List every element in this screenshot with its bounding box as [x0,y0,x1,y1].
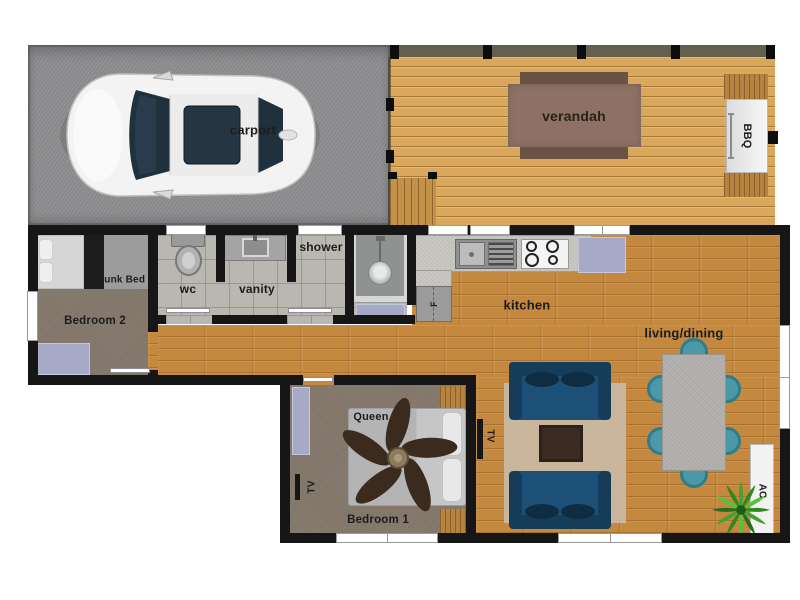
wall [466,375,476,543]
verandah-post [577,45,586,59]
window [298,225,342,235]
verandah-post [390,45,399,59]
sofa-arm [509,362,522,420]
door-opening [148,332,158,370]
queen-label: Queen [353,411,388,423]
sofa-cushion [561,504,595,519]
carport-label: carport [230,123,276,138]
bbq-bench [724,173,768,197]
sofa-arm [598,362,611,420]
bbq-handle [728,113,734,115]
window-frame [610,534,611,542]
car-top-view [56,68,324,202]
bedroom2-label: Bedroom 2 [64,315,126,327]
wall [287,225,296,282]
door-frame [602,226,603,234]
bedroom1-mat [292,387,310,455]
coffee-table [539,425,583,462]
window [558,533,662,543]
wall [280,375,290,543]
sofa-back [509,515,611,529]
verandah-bench [520,147,628,159]
sofa-cushion [525,372,559,387]
sofa-cushion [561,372,595,387]
kitchen-sink-drainer [488,242,514,266]
living-dining-label: living/dining [644,326,723,341]
kitchen-sink-drain [469,252,474,257]
door-opening [287,315,333,324]
bbq-bench [724,74,768,99]
kitchen-label: kitchen [504,298,551,313]
door-opening [166,315,212,324]
vanity-label: vanity [239,282,275,296]
verandah-post [386,98,394,111]
verandah-post [766,45,775,59]
cooktop-burner [526,241,537,252]
cooktop-burner [525,253,539,267]
bedroom1-label: Bedroom 1 [347,514,409,526]
verandah-post [388,172,397,179]
bbq-label: BBQ [741,123,753,148]
ac-label: AC [757,484,768,499]
wall [216,225,225,282]
tv-label-bedroom1: TV [307,480,318,493]
bedroom2-mat [37,343,90,375]
wall [345,225,354,315]
window [166,225,206,235]
verandah-post [483,45,492,59]
tv-label-living: TV [485,429,496,442]
fridge-label: F [429,301,439,307]
verandah-bench [520,72,628,84]
shower-label: shower [299,240,342,254]
door-leaf [110,368,150,373]
bunk-bed-label: Bunk Bed [97,275,145,286]
wc-label: wc [180,282,196,296]
tv-unit [295,474,300,500]
window [428,225,468,235]
bbq-handle [728,157,734,159]
cooktop-burner [548,255,558,265]
verandah-label: verandah [542,108,606,124]
bbq-handle [730,113,732,159]
window-frame [780,377,789,378]
window [336,533,438,543]
door-leaf [166,308,210,313]
bunk-bed-pillow [39,239,53,260]
window [27,291,38,341]
sofa-cushion [525,504,559,519]
cooktop-burner [546,240,559,253]
sofa-back [509,362,611,376]
door-leaf [303,377,333,382]
verandah-post [428,172,437,179]
window [470,225,510,235]
dining-table [662,354,726,471]
sofa-arm [509,471,522,529]
toilet-bowl-icon [182,252,195,269]
verandah-post [768,131,778,144]
wall [28,375,290,385]
sofa [509,362,611,420]
verandah-post [671,45,680,59]
sofa-arm [598,471,611,529]
door-leaf [288,308,332,313]
kitchen-doormat [578,237,626,273]
floor-plan: carport verandah BBQ Bunk Bed Bedroom 2 … [0,0,800,600]
vanity-tap-icon [253,235,257,241]
window [779,325,790,429]
laundry-basin-icon [368,261,392,285]
wall [407,225,416,305]
window-frame [387,534,388,542]
tv-unit [477,419,483,459]
verandah-post [386,150,394,163]
sofa [509,471,611,529]
bunk-bed-pillow [39,262,53,283]
verandah-steps [390,178,436,225]
sliding-door [574,225,630,235]
